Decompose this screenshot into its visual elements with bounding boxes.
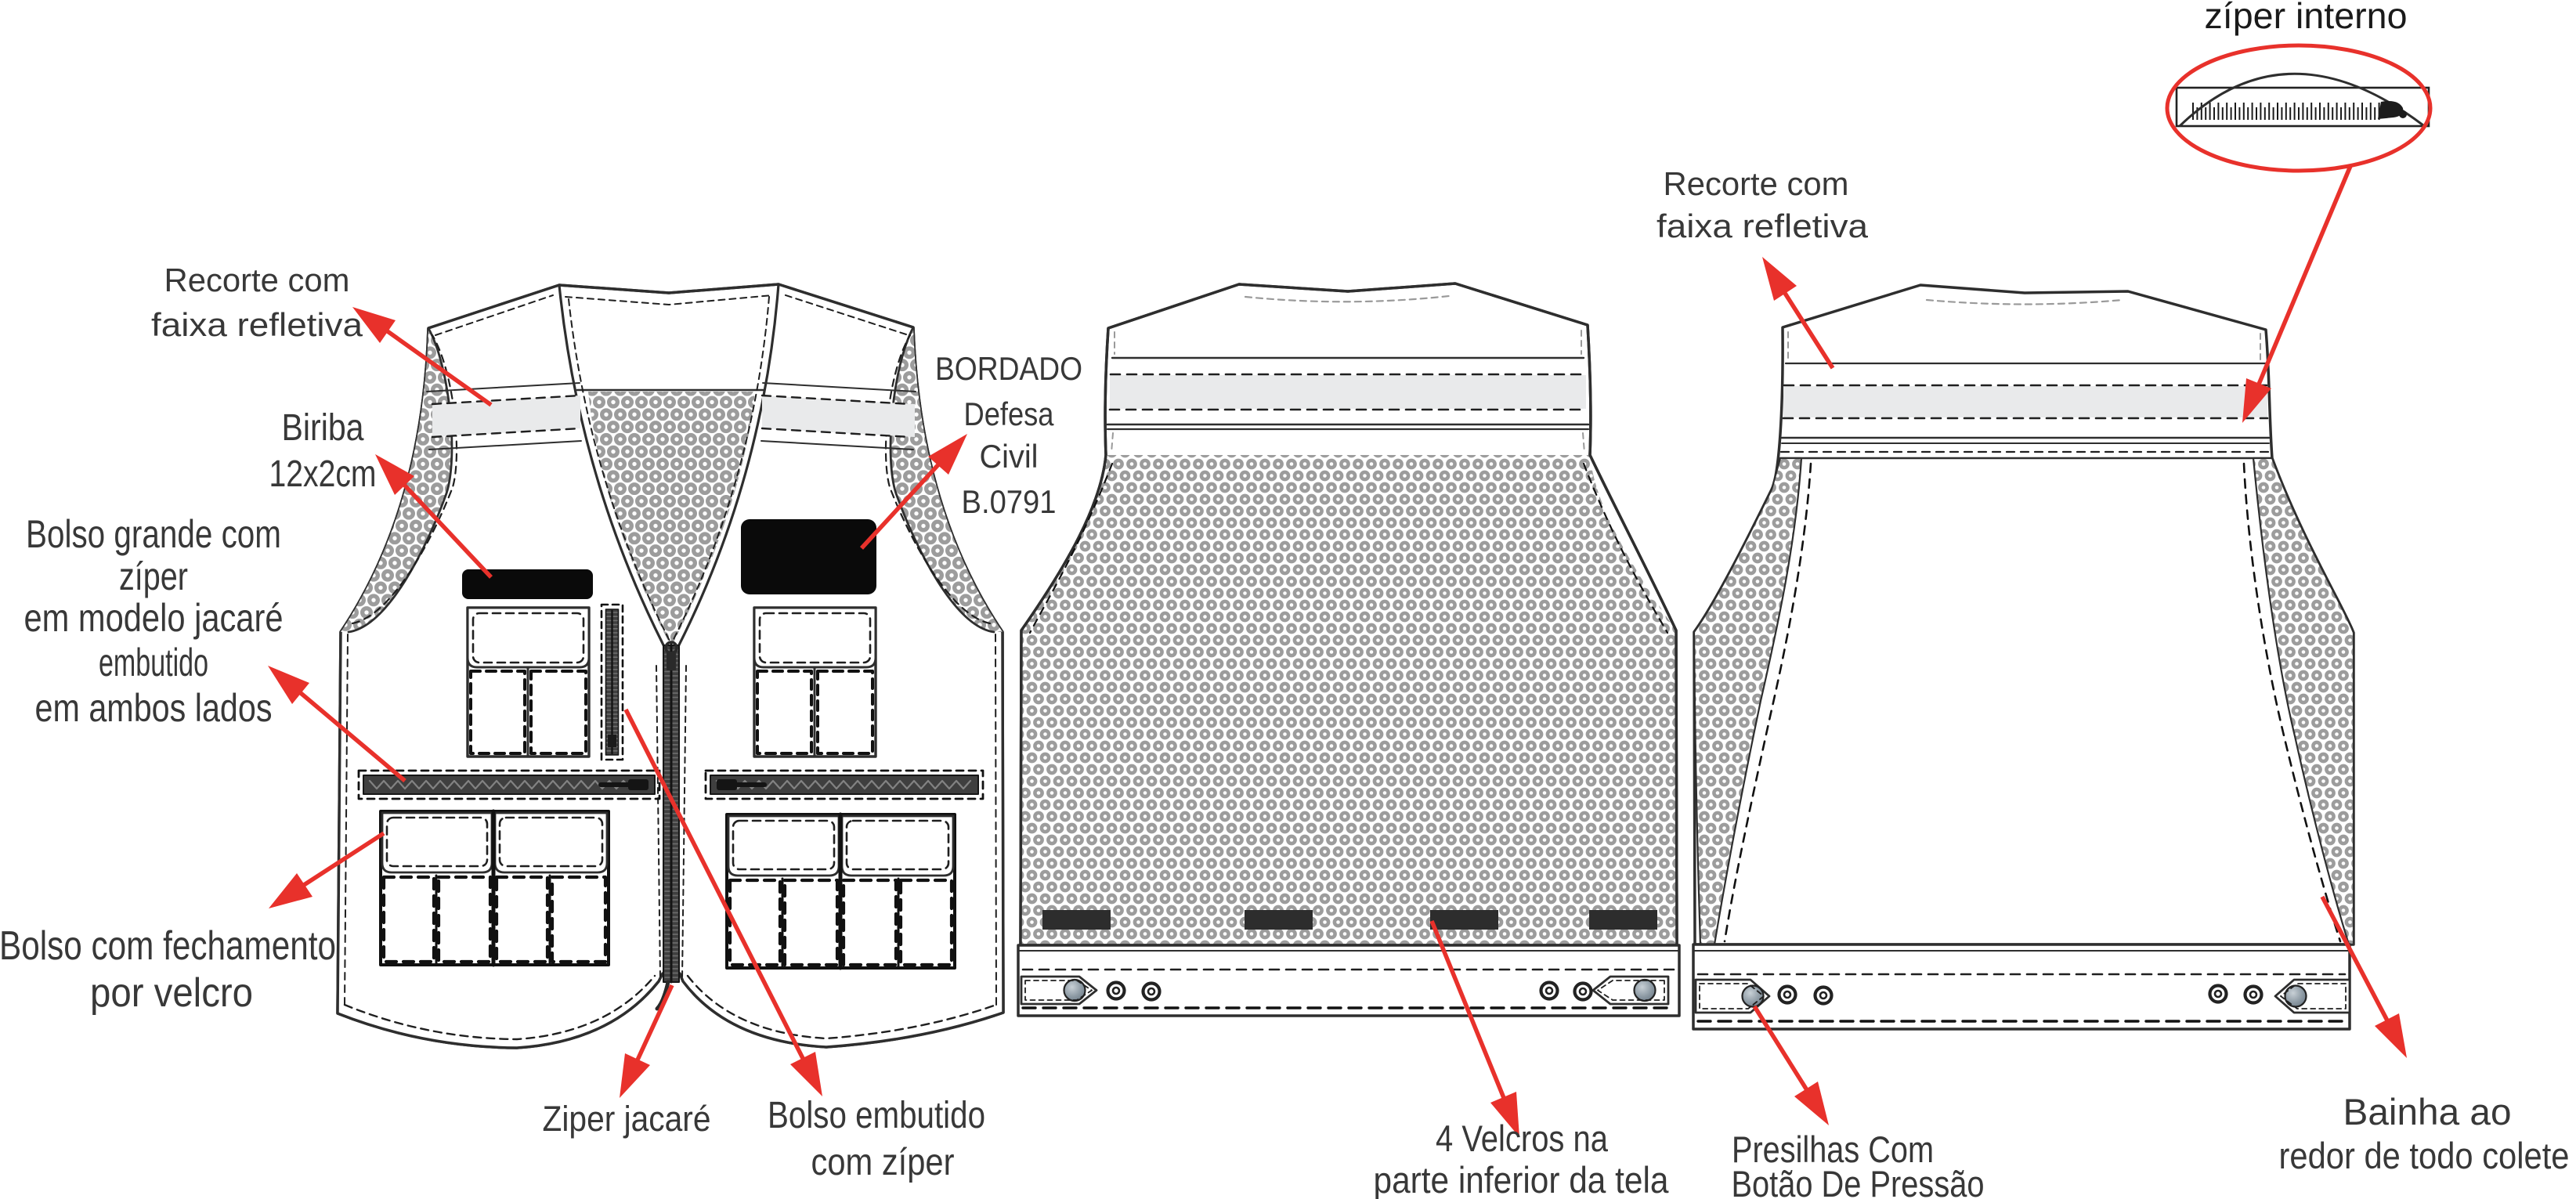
svg-text:Bolso embutido: Bolso embutido <box>768 1095 985 1136</box>
svg-text:Ziper jacaré: Ziper jacaré <box>543 1099 711 1139</box>
svg-text:Recorte com: Recorte com <box>164 262 350 298</box>
svg-text:embutido: embutido <box>99 641 208 684</box>
svg-text:Recorte com: Recorte com <box>1664 165 1849 202</box>
svg-text:Civil: Civil <box>980 438 1039 475</box>
svg-text:Biriba: Biriba <box>282 407 364 449</box>
svg-text:B.0791: B.0791 <box>962 483 1057 520</box>
svg-text:Botão De Pressão: Botão De Pressão <box>1732 1163 1985 1199</box>
svg-text:em ambos lados: em ambos lados <box>35 686 273 730</box>
svg-text:faixa refletiva: faixa refletiva <box>151 306 363 343</box>
svg-text:Bainha ao: Bainha ao <box>2343 1091 2512 1132</box>
svg-text:parte inferior da tela: parte inferior da tela <box>1374 1159 1670 1199</box>
svg-text:BORDADO: BORDADO <box>935 350 1082 387</box>
svg-text:redor de todo colete: redor de todo colete <box>2279 1135 2570 1176</box>
svg-text:Defesa: Defesa <box>964 395 1055 432</box>
svg-text:faixa refletiva: faixa refletiva <box>1657 208 1869 244</box>
svg-text:Bolso grande com: Bolso grande com <box>26 512 281 556</box>
svg-text:em modelo jacaré: em modelo jacaré <box>24 596 284 640</box>
svg-text:com zíper: com zíper <box>811 1142 955 1183</box>
svg-text:Bolso com fechamento: Bolso com fechamento <box>0 923 336 969</box>
svg-text:4 Velcros na: 4 Velcros na <box>1436 1118 1609 1159</box>
svg-text:12x2cm: 12x2cm <box>269 453 377 495</box>
svg-text:por velcro: por velcro <box>90 970 253 1016</box>
svg-text:zíper: zíper <box>119 554 188 598</box>
svg-text:zíper interno: zíper interno <box>2205 0 2408 36</box>
